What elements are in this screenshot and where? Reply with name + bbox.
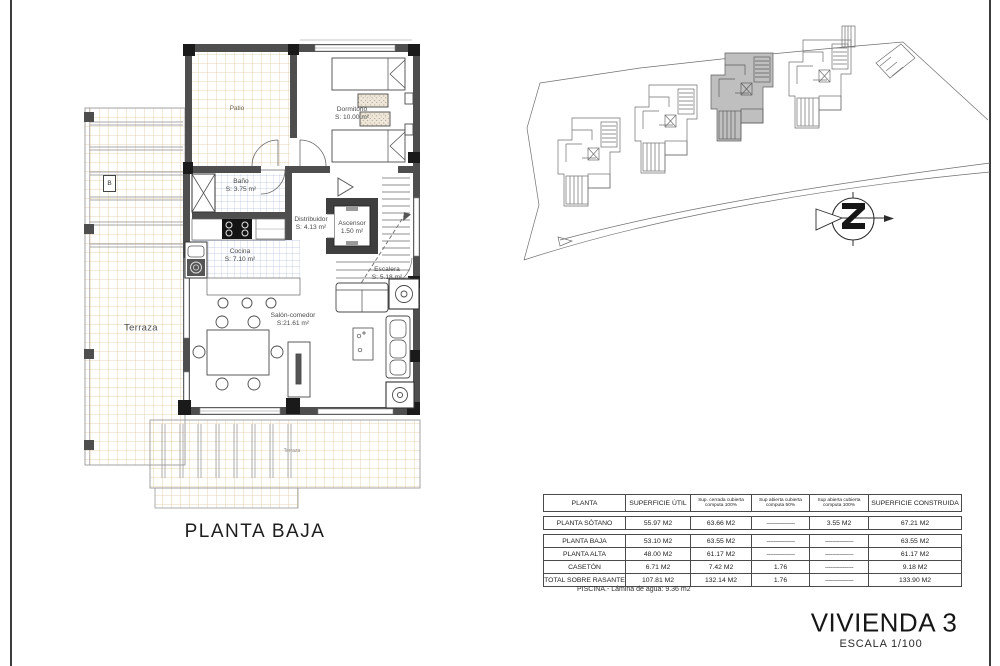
room-label-distribuidor: Distribuidor S: 4.13 m²: [294, 216, 327, 232]
room-area: S:21.61 m²: [271, 320, 316, 328]
room-name: Terraza: [284, 448, 301, 454]
room-area: 1.50 m²: [338, 228, 366, 236]
terrace-bottom: [150, 420, 420, 508]
header-cell: Sup abierta cubierta computa 50%: [752, 495, 810, 511]
room-name: Baño: [226, 178, 256, 186]
header-cell: Sup. cerrada cubierta computa 100%: [691, 495, 752, 511]
room-name: Distribuidor: [294, 216, 327, 224]
section-marker-letter: B: [107, 180, 111, 187]
table-cell: 67.21 M2: [869, 517, 961, 529]
header-cell: SUPERFICIE CONSTRUIDA: [869, 495, 961, 511]
table-cell: ----------------: [810, 574, 869, 586]
section-marker: B: [103, 175, 116, 192]
room-label-escalera: Escalera S: 5.18 m²: [372, 266, 402, 282]
table-row: PLANTA SÓTANO 55.97 M2 63.66 M2 --------…: [544, 517, 961, 529]
table-row: TOTAL SOBRE RASANTE 107.81 M2 132.14 M2 …: [544, 574, 961, 586]
site-plan-linework: [524, 26, 990, 260]
highlighted-unit-fill: [711, 53, 773, 141]
table-cell: TOTAL SOBRE RASANTE: [544, 574, 626, 586]
header-cell: PLANTA: [544, 495, 626, 511]
table-cell: ----------------: [752, 548, 810, 560]
table-cell: 1.76: [752, 574, 810, 586]
table-cell: 6.71 M2: [626, 561, 691, 573]
room-name: Cocina: [225, 248, 255, 256]
room-label-cocina: Cocina S: 7.10 m²: [225, 248, 255, 264]
sheet-scale: ESCALA 1/100: [840, 638, 923, 650]
header-cell: SUPERFICIE ÚTIL: [626, 495, 691, 511]
room-area: S: 5.18 m²: [372, 274, 402, 282]
room-label-terraza-inferior: Terraza: [284, 448, 301, 454]
room-label-ascensor: Ascensor 1.50 m²: [338, 220, 366, 236]
table-cell: PLANTA BAJA: [544, 535, 626, 547]
room-name: Escalera: [372, 266, 402, 274]
table-basement-block: PLANTA SÓTANO 55.97 M2 63.66 M2 --------…: [543, 516, 962, 530]
north-arrow-icon: [816, 192, 894, 246]
room-area: S: 3.75 m²: [226, 186, 256, 194]
table-cell: 63.55 M2: [691, 535, 752, 547]
table-cell: PLANTA ALTA: [544, 548, 626, 560]
room-name: Ascensor: [338, 220, 366, 228]
floor-plan-linework: [84, 40, 420, 508]
room-area: S: 7.10 m²: [225, 256, 255, 264]
table-cell: 7.42 M2: [691, 561, 752, 573]
table-cell: ----------------: [810, 535, 869, 547]
table-cell: PLANTA SÓTANO: [544, 517, 626, 529]
terrace-left: [84, 108, 185, 465]
sheet-title: VIVIENDA 3: [811, 608, 958, 639]
table-cell: 63.66 M2: [691, 517, 752, 529]
table-row: PLANTA ALTA 48.00 M2 61.17 M2 ----------…: [544, 548, 961, 561]
table-cell: 1.76: [752, 561, 810, 573]
table-footnote: PISCINA.- Lámina de agua: 9.36 m2: [577, 586, 691, 593]
plan-caption: PLANTA BAJA: [185, 521, 326, 543]
table-cell: 53.10 M2: [626, 535, 691, 547]
table-cell: 55.97 M2: [626, 517, 691, 529]
room-name: Terraza: [124, 322, 158, 333]
table-cell: 3.55 M2: [810, 517, 869, 529]
room-area: S: 10.00 m²: [335, 114, 369, 122]
living-furniture: [193, 279, 419, 408]
table-cell: ----------------: [810, 561, 869, 573]
table-cell: CASETÓN: [544, 561, 626, 573]
table-cell: 132.14 M2: [691, 574, 752, 586]
table-row: PLANTA BAJA 53.10 M2 63.55 M2 ----------…: [544, 535, 961, 548]
table-cell: ----------------: [752, 535, 810, 547]
table-header: PLANTA SUPERFICIE ÚTIL Sup. cerrada cubi…: [543, 494, 962, 512]
table-header-row: PLANTA SUPERFICIE ÚTIL Sup. cerrada cubi…: [544, 495, 961, 511]
table-cell: 9.18 M2: [869, 561, 961, 573]
header-cell: Sup abierta cubierta computa 100%: [810, 495, 869, 511]
room-label-bano: Baño S: 3.75 m²: [226, 178, 256, 194]
table-cell: 48.00 M2: [626, 548, 691, 560]
table-cell: 61.17 M2: [869, 548, 961, 560]
room-name: Patio: [230, 105, 245, 113]
table-cell: ----------------: [752, 517, 810, 529]
room-name: Dormitorio: [335, 106, 369, 114]
shaft: [192, 174, 215, 212]
table-main-block: PLANTA BAJA 53.10 M2 63.55 M2 ----------…: [543, 534, 962, 587]
table-cell: 61.17 M2: [691, 548, 752, 560]
table-cell: ----------------: [810, 548, 869, 560]
room-name: Salón-comedor: [271, 312, 316, 320]
room-label-terraza: Terraza: [124, 322, 158, 333]
room-label-dormitorio: Dormitorio S: 10.00 m²: [335, 106, 369, 122]
table-row: CASETÓN 6.71 M2 7.42 M2 1.76 -----------…: [544, 561, 961, 574]
table-cell: 133.90 M2: [869, 574, 961, 586]
room-area: S: 4.13 m²: [294, 224, 327, 232]
room-label-salon: Salón-comedor S:21.61 m²: [271, 312, 316, 328]
drawing-sheet: Patio Dormitorio S: 10.00 m² Baño S: 3.7…: [0, 0, 1000, 666]
table-cell: 63.55 M2: [869, 535, 961, 547]
room-label-patio: Patio: [230, 105, 245, 113]
table-cell: 107.81 M2: [626, 574, 691, 586]
